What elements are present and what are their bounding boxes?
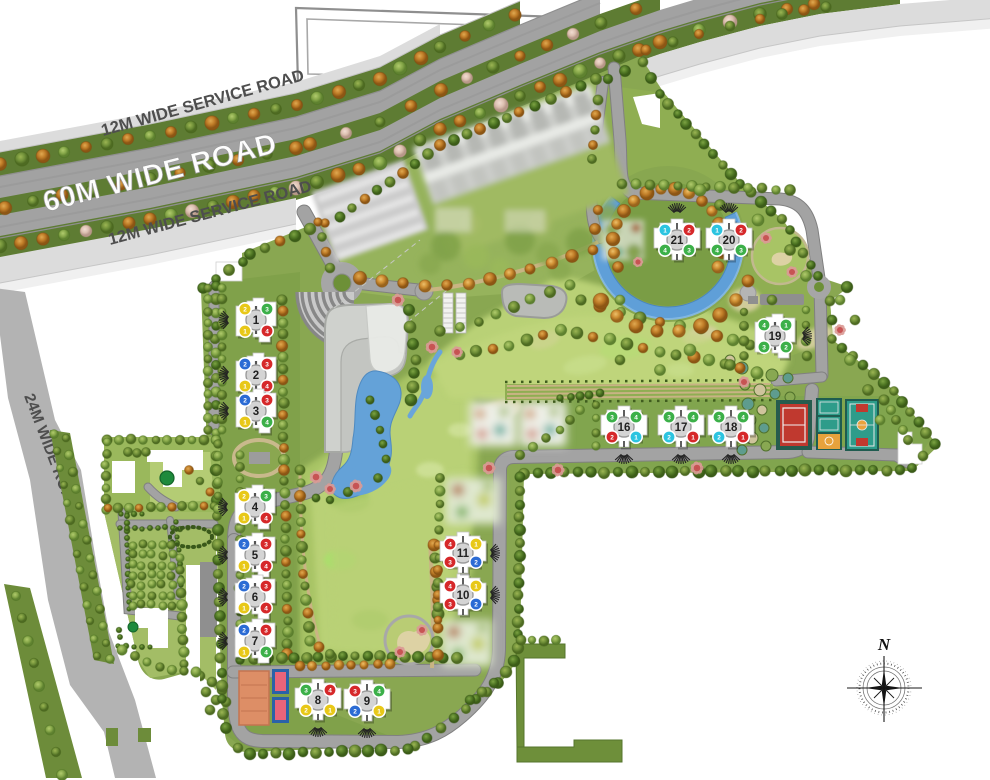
svg-text:2: 2: [243, 361, 247, 368]
svg-text:4: 4: [663, 247, 667, 254]
svg-text:3: 3: [667, 414, 671, 421]
svg-text:4: 4: [328, 687, 332, 694]
svg-text:3: 3: [762, 344, 766, 351]
svg-text:4: 4: [264, 515, 268, 522]
svg-text:4: 4: [448, 541, 452, 548]
svg-text:3: 3: [265, 361, 269, 368]
svg-text:1: 1: [474, 583, 478, 590]
svg-text:2: 2: [242, 627, 246, 634]
svg-text:2: 2: [687, 227, 691, 234]
svg-text:3: 3: [265, 397, 269, 404]
svg-text:3: 3: [265, 306, 269, 313]
svg-text:3: 3: [448, 559, 452, 566]
svg-text:2: 2: [242, 541, 246, 548]
svg-text:7: 7: [252, 636, 258, 648]
svg-text:1: 1: [242, 649, 246, 656]
svg-text:1: 1: [242, 515, 246, 522]
svg-text:1: 1: [741, 434, 745, 441]
svg-text:4: 4: [377, 688, 381, 695]
svg-text:18: 18: [725, 422, 738, 434]
svg-text:2: 2: [243, 397, 247, 404]
svg-text:2: 2: [667, 434, 671, 441]
svg-text:3: 3: [448, 601, 452, 608]
svg-text:1: 1: [691, 434, 695, 441]
svg-text:1: 1: [242, 563, 246, 570]
svg-text:2: 2: [474, 601, 478, 608]
svg-text:17: 17: [675, 422, 688, 434]
svg-text:4: 4: [252, 502, 259, 514]
svg-text:5: 5: [252, 550, 259, 562]
svg-text:4: 4: [265, 328, 269, 335]
svg-text:3: 3: [739, 247, 743, 254]
svg-text:19: 19: [769, 331, 782, 343]
svg-text:4: 4: [715, 247, 719, 254]
svg-text:3: 3: [687, 247, 691, 254]
svg-text:2: 2: [242, 493, 246, 500]
svg-text:2: 2: [243, 306, 247, 313]
svg-text:8: 8: [315, 695, 322, 707]
svg-text:2: 2: [474, 559, 478, 566]
svg-text:2: 2: [784, 344, 788, 351]
svg-text:9: 9: [364, 696, 370, 708]
svg-text:4: 4: [264, 649, 268, 656]
svg-text:3: 3: [304, 687, 308, 694]
svg-text:2: 2: [739, 227, 743, 234]
svg-text:2: 2: [717, 434, 721, 441]
svg-text:3: 3: [264, 627, 268, 634]
svg-text:1: 1: [328, 707, 332, 714]
svg-text:4: 4: [634, 414, 638, 421]
svg-text:N: N: [877, 635, 891, 654]
svg-text:4: 4: [265, 419, 269, 426]
svg-text:3: 3: [717, 414, 721, 421]
svg-text:3: 3: [264, 493, 268, 500]
svg-text:1: 1: [253, 315, 260, 327]
svg-text:2: 2: [253, 370, 259, 382]
svg-text:10: 10: [457, 590, 470, 602]
svg-text:4: 4: [264, 563, 268, 570]
svg-text:4: 4: [691, 414, 695, 421]
svg-text:1: 1: [377, 708, 381, 715]
svg-text:4: 4: [762, 322, 766, 329]
svg-text:3: 3: [610, 414, 614, 421]
svg-text:11: 11: [457, 548, 470, 560]
svg-text:4: 4: [265, 383, 269, 390]
svg-text:2: 2: [304, 707, 308, 714]
svg-text:1: 1: [243, 328, 247, 335]
svg-text:2: 2: [353, 708, 357, 715]
svg-text:1: 1: [242, 605, 246, 612]
svg-text:2: 2: [242, 583, 246, 590]
svg-text:1: 1: [243, 383, 247, 390]
svg-text:4: 4: [741, 414, 745, 421]
svg-text:3: 3: [264, 541, 268, 548]
svg-text:1: 1: [634, 434, 638, 441]
svg-text:6: 6: [252, 592, 258, 604]
svg-text:3: 3: [264, 583, 268, 590]
svg-text:1: 1: [715, 227, 719, 234]
svg-text:2: 2: [610, 434, 614, 441]
svg-text:16: 16: [618, 422, 631, 434]
svg-text:1: 1: [474, 541, 478, 548]
svg-text:4: 4: [448, 583, 452, 590]
svg-text:20: 20: [723, 235, 736, 247]
svg-text:1: 1: [784, 322, 788, 329]
svg-text:3: 3: [353, 688, 357, 695]
svg-text:4: 4: [264, 605, 268, 612]
svg-text:3: 3: [253, 406, 259, 418]
svg-text:1: 1: [663, 227, 667, 234]
svg-text:21: 21: [671, 235, 684, 247]
svg-text:1: 1: [243, 419, 247, 426]
